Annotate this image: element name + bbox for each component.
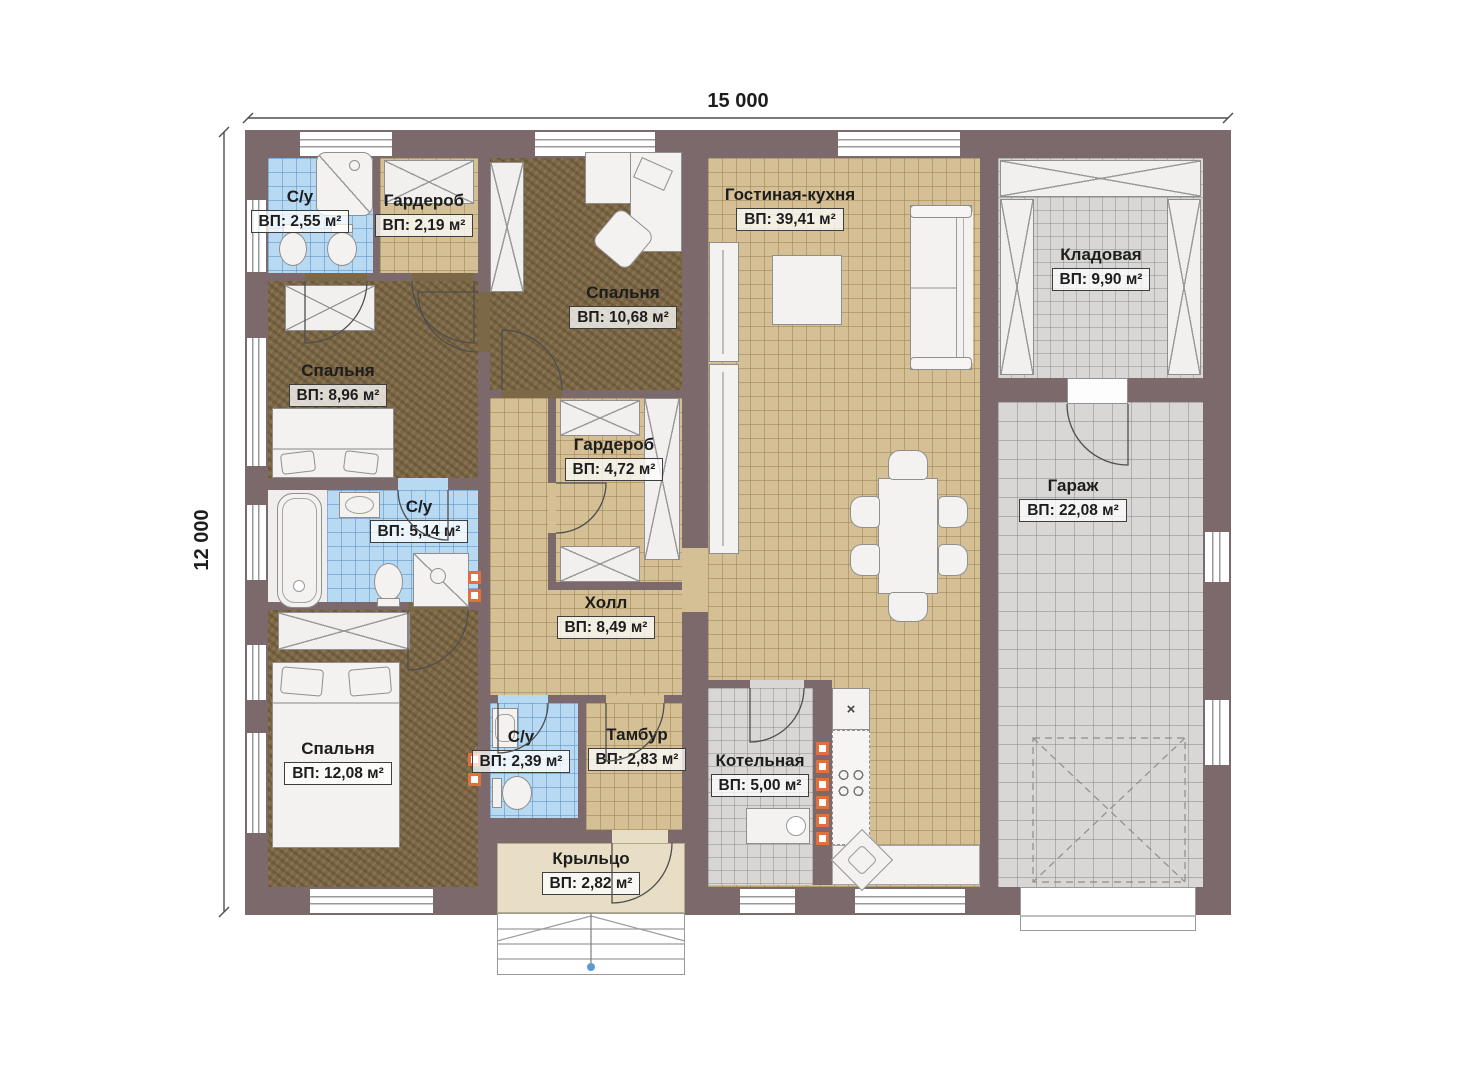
dining-chair bbox=[850, 544, 880, 576]
wardrobe-cabinet-icon bbox=[490, 162, 524, 292]
window-left-4 bbox=[247, 645, 266, 700]
tv-stand bbox=[709, 364, 739, 554]
tv-stand bbox=[709, 242, 739, 362]
door-opening-boiler bbox=[750, 680, 804, 688]
pillow bbox=[280, 450, 316, 475]
floor-boiler-room bbox=[708, 688, 813, 885]
radiator-icon bbox=[468, 589, 481, 602]
washbasin-bowl bbox=[495, 714, 515, 742]
wardrobe-cabinet-icon bbox=[644, 398, 680, 560]
dining-chair bbox=[938, 496, 968, 528]
floor-porch bbox=[497, 843, 685, 913]
radiator-icon bbox=[816, 760, 829, 773]
door-opening-wc-mid bbox=[398, 478, 448, 490]
door-pantry-garage bbox=[1067, 378, 1128, 404]
window-left-1 bbox=[247, 200, 266, 272]
wardrobe-cabinet-icon bbox=[560, 400, 640, 436]
toilet-tank bbox=[492, 778, 502, 808]
wardrobe-cabinet-icon bbox=[278, 612, 410, 650]
window-bottom-2 bbox=[740, 889, 795, 913]
stove bbox=[835, 766, 867, 822]
sofa-back-line bbox=[963, 212, 964, 363]
window-left-3 bbox=[247, 505, 266, 580]
porch-steps bbox=[497, 913, 685, 975]
door-opening-bedroom-wc bbox=[305, 273, 367, 281]
washbasin-bowl bbox=[345, 496, 374, 514]
pillow bbox=[348, 666, 392, 697]
bathtub-drain bbox=[293, 580, 305, 592]
floor-garage bbox=[998, 402, 1203, 887]
dim-tick bbox=[219, 907, 229, 917]
radiator-icon bbox=[468, 773, 481, 786]
radiator-icon bbox=[816, 796, 829, 809]
shower-cabin bbox=[316, 152, 373, 216]
tv-stand-line bbox=[722, 250, 724, 354]
pillow bbox=[280, 666, 324, 697]
wardrobe-cabinet-icon bbox=[1000, 199, 1034, 375]
dining-chair bbox=[850, 496, 880, 528]
fridge-cross-icon: × bbox=[847, 701, 856, 718]
radiator-icon bbox=[468, 571, 481, 584]
window-right-2 bbox=[1205, 700, 1229, 765]
wall-wardrobe-mid-bottom bbox=[548, 582, 682, 590]
window-right-1 bbox=[1205, 532, 1229, 582]
dim-tick bbox=[243, 113, 253, 123]
door-opening-bedroom-wardrobe bbox=[412, 273, 474, 281]
wardrobe-cabinet-icon bbox=[285, 285, 375, 331]
floor-vestibule bbox=[586, 703, 682, 830]
radiator-icon bbox=[816, 832, 829, 845]
window-bottom-3 bbox=[855, 889, 965, 913]
wardrobe-cabinet-icon bbox=[560, 546, 640, 582]
radiator-icon bbox=[816, 742, 829, 755]
shower-drain bbox=[349, 160, 360, 171]
door-opening-hall-living bbox=[682, 548, 708, 612]
door-opening-vestibule bbox=[606, 695, 664, 703]
wardrobe-cabinet-icon bbox=[1000, 160, 1201, 197]
door-opening-entrance bbox=[612, 830, 668, 843]
dim-tick bbox=[1223, 113, 1233, 123]
garage-door bbox=[1020, 887, 1196, 931]
dining-table bbox=[878, 478, 938, 594]
window-left-5 bbox=[247, 733, 266, 833]
door-opening-hall-bedroom-mid bbox=[478, 292, 490, 352]
washbasin bbox=[327, 232, 357, 266]
dimension-height-label: 12 000 bbox=[191, 485, 215, 595]
window-left-2 bbox=[247, 338, 266, 466]
radiator-icon bbox=[816, 778, 829, 791]
toilet bbox=[279, 232, 307, 266]
wardrobe-cabinet-icon bbox=[1167, 199, 1201, 375]
toilet bbox=[374, 563, 403, 601]
pillow bbox=[343, 450, 379, 475]
dining-chair bbox=[938, 544, 968, 576]
bed-edge-line bbox=[273, 702, 399, 704]
dim-tick bbox=[219, 127, 229, 137]
wardrobe-cabinet-icon bbox=[384, 160, 474, 204]
door-opening-wardrobe-mid bbox=[548, 483, 556, 533]
dining-chair bbox=[888, 592, 928, 622]
radiator-icon bbox=[816, 814, 829, 827]
shower-drain bbox=[430, 568, 446, 584]
sofa-back bbox=[956, 212, 973, 363]
sofa-cushion-line bbox=[911, 287, 956, 289]
door-opening-wc-bottom bbox=[498, 695, 548, 703]
toilet bbox=[502, 776, 532, 810]
radiator-icon bbox=[468, 753, 481, 766]
window-top-3 bbox=[838, 132, 960, 156]
window-bottom-1 bbox=[310, 889, 433, 913]
bed-edge-line bbox=[273, 448, 393, 450]
sofa-armrest bbox=[910, 205, 972, 218]
tv-stand-line bbox=[722, 372, 724, 546]
sofa-armrest bbox=[910, 357, 972, 370]
fridge: × bbox=[832, 688, 870, 730]
coffee-table bbox=[772, 255, 842, 325]
boiler-dial bbox=[786, 816, 806, 836]
floor-plan-canvas: 15 000 12 000 bbox=[0, 0, 1473, 1080]
dining-chair bbox=[888, 450, 928, 480]
dimension-width-label: 15 000 bbox=[688, 90, 788, 113]
door-opening-hall-bedroom-top bbox=[502, 390, 562, 398]
toilet-tank bbox=[377, 598, 400, 607]
